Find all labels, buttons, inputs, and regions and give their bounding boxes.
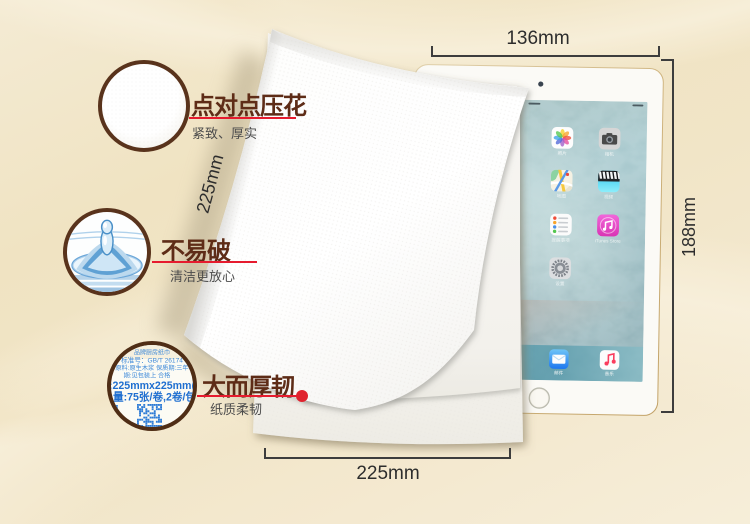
svg-text:期:见包装上 合格: 期:见包装上 合格: [124, 372, 172, 380]
svg-text::225mmx225mm(2层: :225mmx225mm(2层: [111, 380, 193, 392]
svg-text:品牌厨房纸巾: 品牌厨房纸巾: [134, 349, 170, 357]
svg-text:标准号：GB/T 26174: 标准号：GB/T 26174: [121, 356, 183, 365]
svg-text:原料:原生木浆 保质期:三年: 原料:原生木浆 保质期:三年: [115, 364, 188, 372]
svg-text:量:75张/卷,2卷/包: 量:75张/卷,2卷/包: [113, 391, 193, 404]
